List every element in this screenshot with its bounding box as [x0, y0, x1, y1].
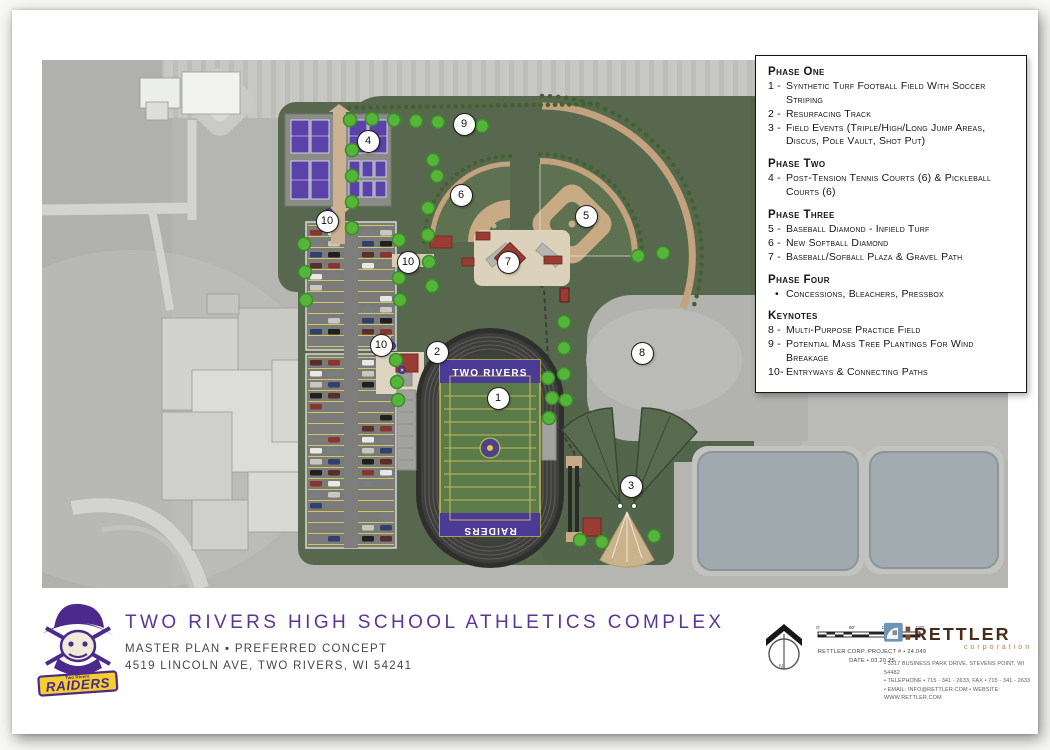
parked-car [362, 470, 374, 476]
keynote-marker: 5 [575, 205, 598, 228]
legend-item: 6 -New Softball Diamond [768, 237, 1016, 251]
parked-car [362, 371, 374, 377]
parked-car [362, 481, 374, 487]
parked-car [380, 525, 392, 531]
rettler-name: RETTLER [914, 624, 1011, 644]
parked-car [310, 263, 322, 269]
tree-icon [346, 196, 359, 209]
legend-item: 5 -Baseball Diamond - Infield Turf [768, 223, 1016, 237]
parked-car [328, 437, 340, 443]
tree-icon [574, 534, 587, 547]
parked-car [362, 459, 374, 465]
parked-car [380, 459, 392, 465]
keynote-marker: 3 [620, 475, 643, 498]
parked-car [310, 329, 322, 335]
parked-car [328, 274, 340, 280]
parked-car [328, 481, 340, 487]
parked-car [328, 470, 340, 476]
tree-icon [432, 116, 445, 129]
firm-address-line: • EMAIL: INFO@RETTLER.COM • WEBSITE: WWW… [884, 686, 1034, 703]
tree-icon [393, 234, 406, 247]
tree-icon [546, 392, 559, 405]
scale-tick: 0' [816, 625, 820, 631]
legend-item: 4 -Post-Tension Tennis Courts (6) & Pick… [768, 172, 1016, 200]
firm-block: RETTLER corporation • 3317 BUSINESS PARK… [884, 620, 1034, 703]
legend-box: Phase One 1 -Synthetic Turf Football Fie… [755, 55, 1027, 393]
firm-address-line: • 3317 BUSINESS PARK DRIVE, STEVENS POIN… [884, 660, 1034, 677]
tree-icon [394, 294, 407, 307]
tree-icon [543, 412, 556, 425]
keynote-marker: 4 [357, 130, 380, 153]
tree-icon [298, 238, 311, 251]
tree-icon [393, 272, 406, 285]
tree-icon [542, 372, 555, 385]
parked-car [310, 492, 322, 498]
parked-car [380, 470, 392, 476]
legend-item: 9 -Potential Mass Tree Plantings For Win… [768, 338, 1016, 366]
parked-car [328, 263, 340, 269]
legend-title: Phase Two [768, 158, 1016, 170]
sheet-subtitle: MASTER PLAN ▪ PREFERRED CONCEPT [125, 641, 724, 658]
legend-item: 8 -Multi-Purpose Practice Field [768, 324, 1016, 338]
keynote-marker: 1 [487, 387, 510, 410]
parked-car [362, 329, 374, 335]
parked-car [362, 307, 374, 313]
retention-ponds [692, 446, 1004, 576]
field-text-top: TWO RIVERS [452, 368, 527, 379]
parked-car [380, 426, 392, 432]
keynote-marker: 8 [631, 342, 654, 365]
keynote-marker: 7 [497, 251, 520, 274]
parked-car [362, 263, 374, 269]
tree-icon [657, 247, 670, 260]
pirate-hat-crown [54, 604, 104, 628]
parked-car [310, 404, 322, 410]
title-block: TWO RIVERS HIGH SCHOOL ATHLETICS COMPLEX… [125, 612, 724, 674]
legend-item: •Concessions, Bleachers, Pressbox [768, 288, 1016, 302]
parked-car [362, 382, 374, 388]
tree-icon [366, 113, 379, 126]
tree-icon [410, 115, 423, 128]
north-label: N [779, 664, 783, 670]
keynote-marker: 9 [453, 113, 476, 136]
parked-car [362, 448, 374, 454]
legend-item: 1 -Synthetic Turf Football Field With So… [768, 80, 1016, 108]
parked-car [380, 241, 392, 247]
tree-icon [648, 530, 661, 543]
parked-car [362, 426, 374, 432]
parked-car [362, 360, 374, 366]
parked-car [380, 514, 392, 520]
parked-car [362, 318, 374, 324]
parked-car [310, 481, 322, 487]
sheet-title: TWO RIVERS HIGH SCHOOL ATHLETICS COMPLEX [125, 612, 724, 634]
parked-car [328, 536, 340, 542]
legend-item: 10-Entryways & Connecting Paths [768, 366, 1016, 380]
parked-car [380, 318, 392, 324]
parked-car [310, 503, 322, 509]
parked-car [380, 415, 392, 421]
tree-icon [299, 266, 312, 279]
tree-icon [423, 256, 436, 269]
legend-section-phase-three: Phase Three 5 -Baseball Diamond - Infiel… [768, 209, 1016, 265]
legend-title: Keynotes [768, 310, 1016, 322]
legend-section-phase-two: Phase Two 4 -Post-Tension Tennis Courts … [768, 158, 1016, 200]
tree-icon [558, 342, 571, 355]
keynote-marker: 10 [370, 334, 393, 357]
legend-section-phase-one: Phase One 1 -Synthetic Turf Football Fie… [768, 66, 1016, 149]
keynote-marker: 6 [450, 184, 473, 207]
parked-car [310, 459, 322, 465]
tree-icon [344, 114, 357, 127]
tree-icon [300, 294, 313, 307]
parked-car [310, 285, 322, 291]
tree-icon [346, 144, 359, 157]
raiders-logo: Two Rivers RAIDERS [36, 594, 120, 706]
keynote-marker: 2 [426, 341, 449, 364]
legend-title: Phase Four [768, 274, 1016, 286]
tree-icon [426, 280, 439, 293]
rettler-subname: corporation [964, 644, 1032, 651]
parked-car [328, 393, 340, 399]
legend-section-keynotes: Keynotes 8 -Multi-Purpose Practice Field… [768, 310, 1016, 379]
tree-icon [560, 394, 573, 407]
parked-car [310, 241, 322, 247]
legend-item: 2 -Resurfacing Track [768, 108, 1016, 122]
legend-title: Phase Three [768, 209, 1016, 221]
parked-car [328, 318, 340, 324]
legend-item: 3 -Field Events (Triple/High/Long Jump A… [768, 122, 1016, 150]
tree-icon [558, 316, 571, 329]
field-text-bottom: RAIDERS [463, 525, 516, 536]
parked-car [328, 492, 340, 498]
tree-icon [427, 154, 440, 167]
plan-sheet: TWO RIVERS RAIDERS [12, 10, 1038, 734]
parked-car [310, 360, 322, 366]
parked-car [380, 307, 392, 313]
parked-car [328, 371, 340, 377]
rettler-logo: RETTLER corporation [884, 620, 1034, 652]
firm-address: • 3317 BUSINESS PARK DRIVE, STEVENS POIN… [884, 660, 1034, 703]
parked-car [362, 230, 374, 236]
tree-icon [596, 536, 609, 549]
tree-icon [558, 368, 571, 381]
tree-icon [422, 202, 435, 215]
parked-car [310, 448, 322, 454]
tree-icon [388, 114, 401, 127]
parked-car [362, 252, 374, 258]
keynote-marker: 10 [316, 210, 339, 233]
parked-car [380, 252, 392, 258]
parked-car [362, 536, 374, 542]
parked-car [328, 448, 340, 454]
parked-car [362, 525, 374, 531]
tree-icon [422, 229, 435, 242]
scale-tick: 60' [849, 625, 855, 631]
parked-car [328, 329, 340, 335]
parked-car [362, 241, 374, 247]
parked-car [310, 382, 322, 388]
north-arrow-icon: N [758, 622, 810, 678]
tree-icon [431, 170, 444, 183]
tree-icon [390, 354, 403, 367]
tree-icon [392, 394, 405, 407]
parked-car [310, 470, 322, 476]
legend-item: 7 -Baseball/Sofball Plaza & Gravel Path [768, 251, 1016, 265]
parked-car [328, 382, 340, 388]
parked-car [328, 360, 340, 366]
tree-icon [632, 250, 645, 263]
legend-section-phase-four: Phase Four •Concessions, Bleachers, Pres… [768, 274, 1016, 302]
parked-car [380, 437, 392, 443]
raiders-banner: Two Rivers RAIDERS [38, 671, 117, 695]
sheet-address: 4519 LINCOLN AVE, TWO RIVERS, WI 54241 [125, 658, 724, 675]
parked-car [310, 274, 322, 280]
parked-car [380, 296, 392, 302]
tree-icon [346, 170, 359, 183]
tree-icon [346, 222, 359, 235]
tree-icon [391, 376, 404, 389]
parked-car [380, 448, 392, 454]
parked-car [310, 371, 322, 377]
parked-car [380, 536, 392, 542]
legend-title: Phase One [768, 66, 1016, 78]
parked-car [328, 459, 340, 465]
parked-car [328, 252, 340, 258]
parked-car [310, 252, 322, 258]
parked-car [362, 437, 374, 443]
firm-address-line: • TELEPHONE • 715 - 341 - 2633, FAX • 71… [884, 677, 1034, 686]
tree-icon [476, 120, 489, 133]
parked-car [310, 393, 322, 399]
keynote-marker: 10 [397, 251, 420, 274]
parked-car [380, 230, 392, 236]
